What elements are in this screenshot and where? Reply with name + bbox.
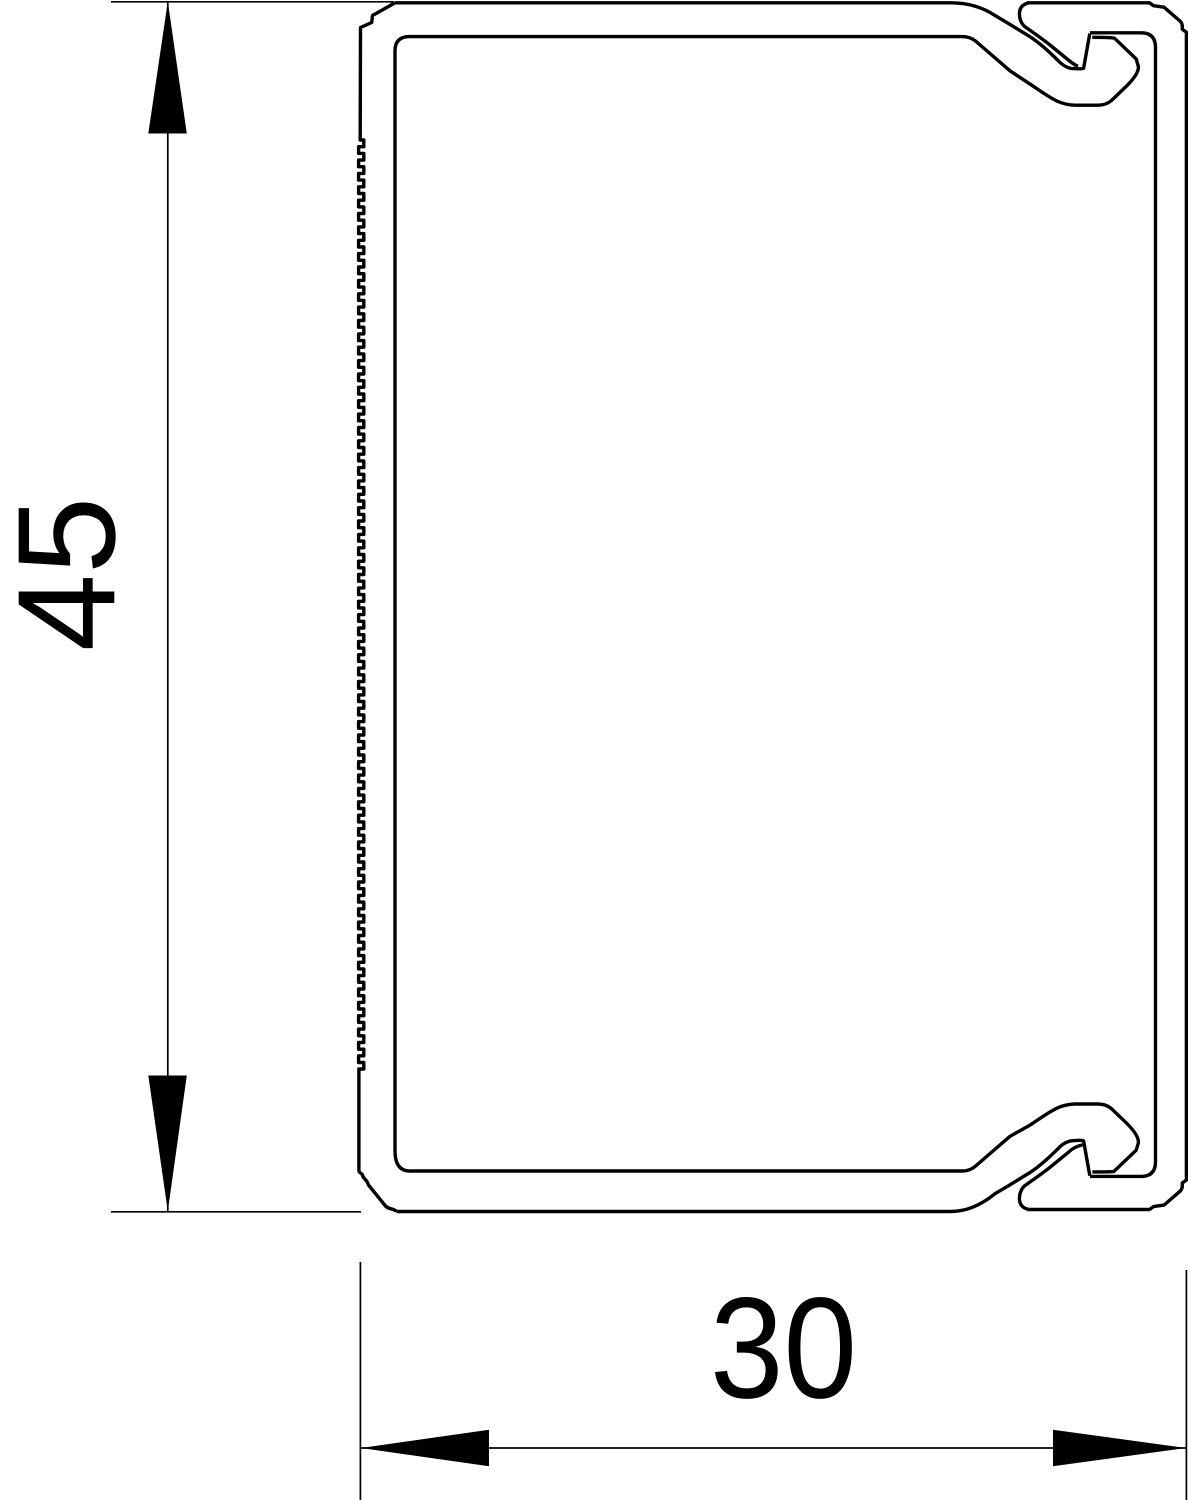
- svg-text:30: 30: [710, 1268, 857, 1429]
- svg-text:45: 45: [0, 497, 144, 652]
